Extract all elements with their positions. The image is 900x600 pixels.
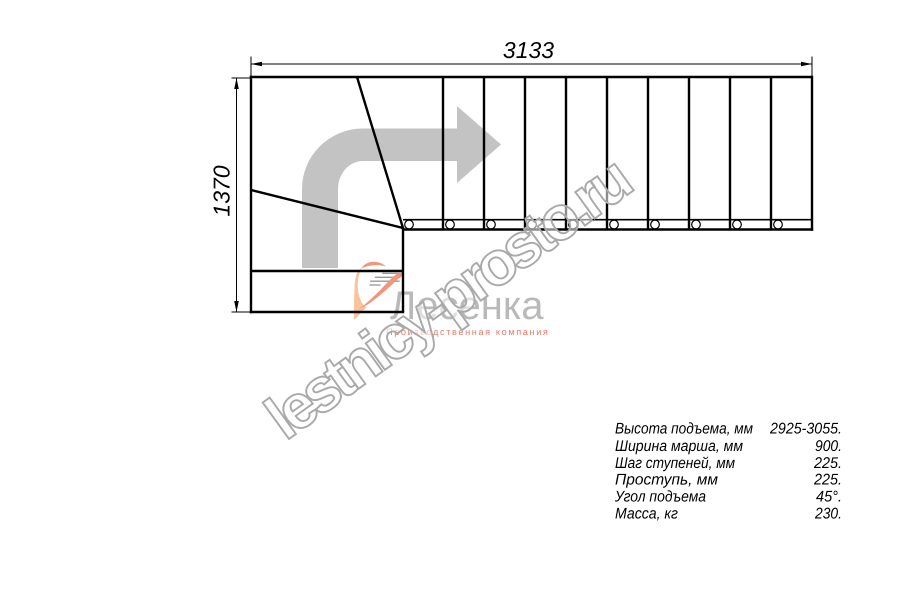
svg-text:Масса, кг: Масса, кг [615, 506, 678, 523]
svg-text:900.: 900. [815, 438, 842, 455]
svg-text:225.: 225. [813, 455, 842, 472]
svg-text:Проступь, мм: Проступь, мм [615, 472, 718, 489]
svg-text:230.: 230. [814, 506, 842, 523]
svg-text:3133: 3133 [503, 37, 554, 63]
svg-text:45°.: 45°. [816, 489, 842, 506]
svg-text:Высота подъема, мм: Высота подъема, мм [615, 421, 753, 438]
svg-text:1370: 1370 [209, 165, 235, 216]
svg-text:Шаг ступеней, мм: Шаг ступеней, мм [615, 455, 735, 472]
svg-text:Ширина марша, мм: Ширина марша, мм [615, 438, 743, 455]
svg-text:2925-3055.: 2925-3055. [769, 421, 842, 438]
svg-text:225.: 225. [813, 472, 842, 489]
svg-text:Угол подъема: Угол подъема [614, 489, 706, 506]
